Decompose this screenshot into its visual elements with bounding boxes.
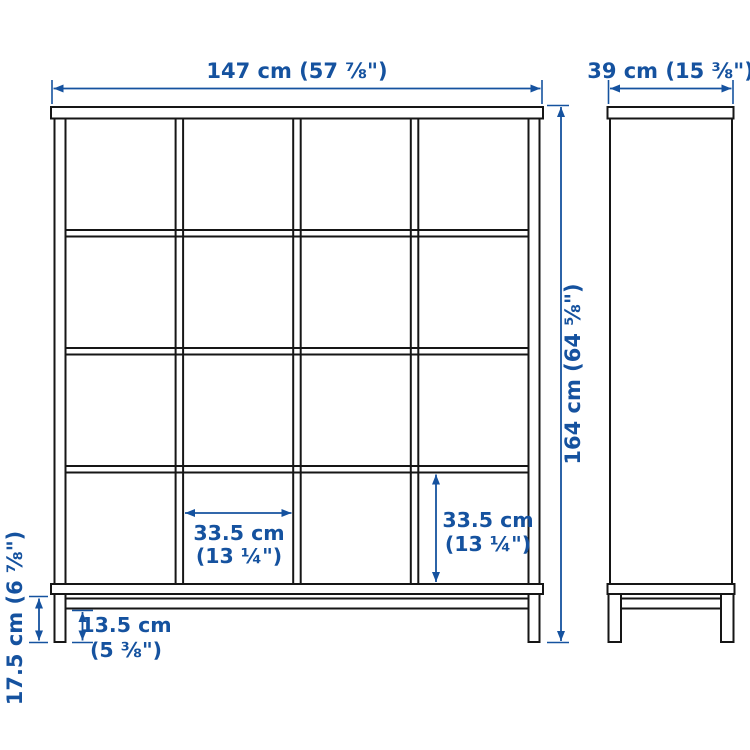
front-divider-3	[411, 119, 419, 585]
leg-height-label-line1: 13.5 cm	[80, 613, 171, 637]
depth-dimension-label: 39 cm (15 ⅜")	[587, 59, 750, 83]
width-dimension-label: 147 cm (57 ⅞")	[206, 59, 387, 83]
side-base-rail	[621, 599, 721, 609]
furniture-dimension-diagram: 147 cm (57 ⅞") 39 cm (15 ⅜") 164 cm (64 …	[0, 0, 750, 750]
leg-height-dimension: 13.5 cm (5 ⅜")	[72, 611, 172, 663]
cell-height-dimension: 33.5 cm (13 ¼")	[436, 475, 534, 583]
cell-width-label-line2: (13 ¼")	[196, 544, 282, 568]
front-shelf-1	[66, 230, 529, 237]
cell-width-label-line1: 33.5 cm	[193, 521, 284, 545]
side-view	[608, 107, 735, 642]
front-left-leg	[55, 594, 66, 642]
cell-height-label-line2: (13 ¼")	[445, 532, 531, 556]
height-dimension-label: 164 cm (64 ⅝")	[561, 283, 585, 464]
height-dimension: 164 cm (64 ⅝")	[547, 106, 585, 643]
front-shelf-3	[66, 466, 529, 473]
side-bottom-panel	[608, 584, 735, 594]
front-shelf-2	[66, 348, 529, 355]
front-right-leg	[529, 594, 540, 642]
front-divider-2	[293, 119, 301, 585]
leg-height-label-line2: (5 ⅜")	[90, 638, 162, 662]
cell-height-label-line1: 33.5 cm	[442, 508, 533, 532]
front-view	[51, 107, 543, 642]
front-left-side-panel	[55, 119, 66, 585]
plinth-height-dimension: 17.5 cm (6 ⅞")	[3, 531, 48, 706]
side-top-panel	[608, 107, 734, 119]
side-front-leg	[609, 594, 622, 642]
dimension-diagram-page: 147 cm (57 ⅞") 39 cm (15 ⅜") 164 cm (64 …	[0, 0, 750, 750]
front-base-rail	[66, 599, 529, 609]
cell-width-dimension: 33.5 cm (13 ¼")	[185, 513, 292, 568]
side-back-leg	[721, 594, 734, 642]
front-top-panel	[51, 107, 543, 119]
front-bottom-panel	[51, 584, 543, 594]
depth-dimension: 39 cm (15 ⅜")	[587, 59, 750, 104]
side-body-panel	[610, 119, 732, 585]
front-divider-1	[176, 119, 184, 585]
plinth-height-label: 17.5 cm (6 ⅞")	[3, 531, 27, 706]
width-dimension: 147 cm (57 ⅞")	[52, 59, 542, 104]
